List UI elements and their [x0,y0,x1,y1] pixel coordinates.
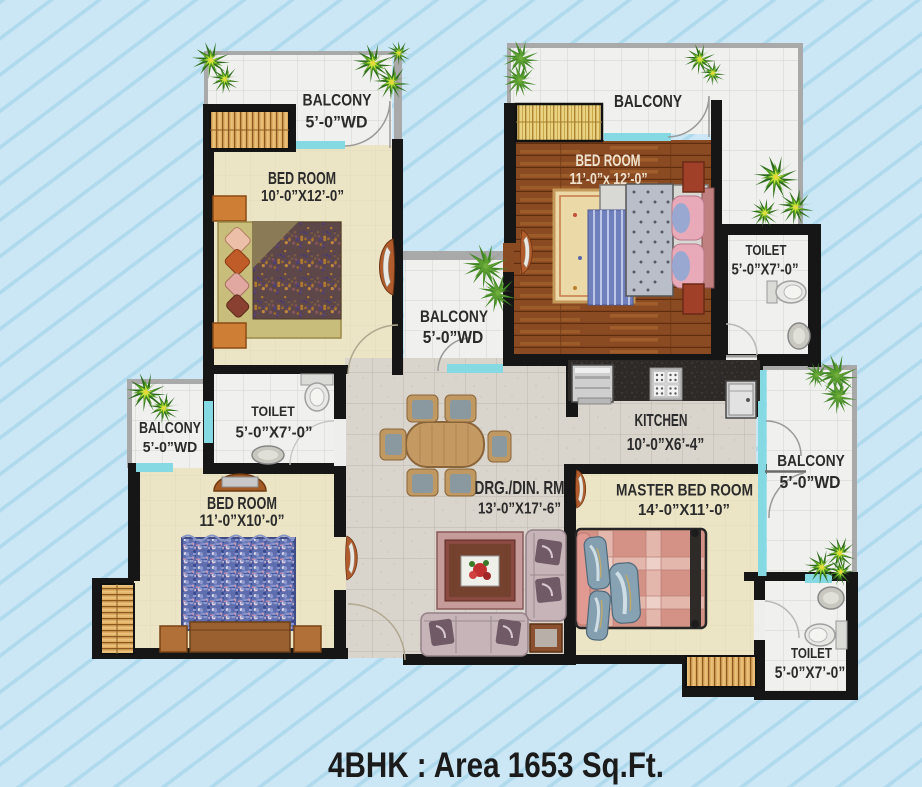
svg-text:11’-0”x 12’-0”: 11’-0”x 12’-0” [570,171,648,188]
svg-text:BALCONY: BALCONY [303,91,373,110]
svg-text:BALCONY: BALCONY [139,420,202,437]
svg-text:TOILET: TOILET [791,646,832,662]
svg-text:4BHK : Area 1653 Sq.Ft.: 4BHK : Area 1653 Sq.Ft. [328,746,664,785]
svg-text:5’-0”WD: 5’-0”WD [306,113,368,132]
svg-text:14’-0”X11’-0”: 14’-0”X11’-0” [638,502,730,519]
svg-text:5’-0”X7’-0”: 5’-0”X7’-0” [732,262,799,279]
svg-text:5’-0”WD: 5’-0”WD [780,472,841,492]
svg-text:BALCONY: BALCONY [614,91,682,111]
svg-text:10’-0”X12’-0”: 10’-0”X12’-0” [261,188,344,205]
svg-text:10’-0”X6’-4”: 10’-0”X6’-4” [627,434,705,454]
svg-text:5’-0”X7’-0”: 5’-0”X7’-0” [236,425,313,442]
svg-text:DRG./DIN. RM: DRG./DIN. RM [475,478,565,498]
svg-text:BED ROOM: BED ROOM [207,493,277,513]
svg-text:BED ROOM: BED ROOM [576,151,641,170]
svg-text:BALCONY: BALCONY [420,307,489,326]
svg-text:5’-0”WD: 5’-0”WD [423,327,484,347]
svg-text:TOILET: TOILET [251,403,295,419]
svg-text:5’-0”WD: 5’-0”WD [143,440,198,456]
svg-text:MASTER BED ROOM: MASTER BED ROOM [616,482,753,500]
svg-text:TOILET: TOILET [746,243,787,259]
svg-text:KITCHEN: KITCHEN [635,410,688,430]
svg-text:BALCONY: BALCONY [777,453,845,470]
svg-text:11’-0”X10’-0”: 11’-0”X10’-0” [200,512,285,530]
svg-text:5’-0”X7’-0”: 5’-0”X7’-0” [775,663,846,682]
svg-text:BED ROOM: BED ROOM [268,168,336,188]
svg-text:13’-0”X17’-6”: 13’-0”X17’-6” [478,501,561,518]
